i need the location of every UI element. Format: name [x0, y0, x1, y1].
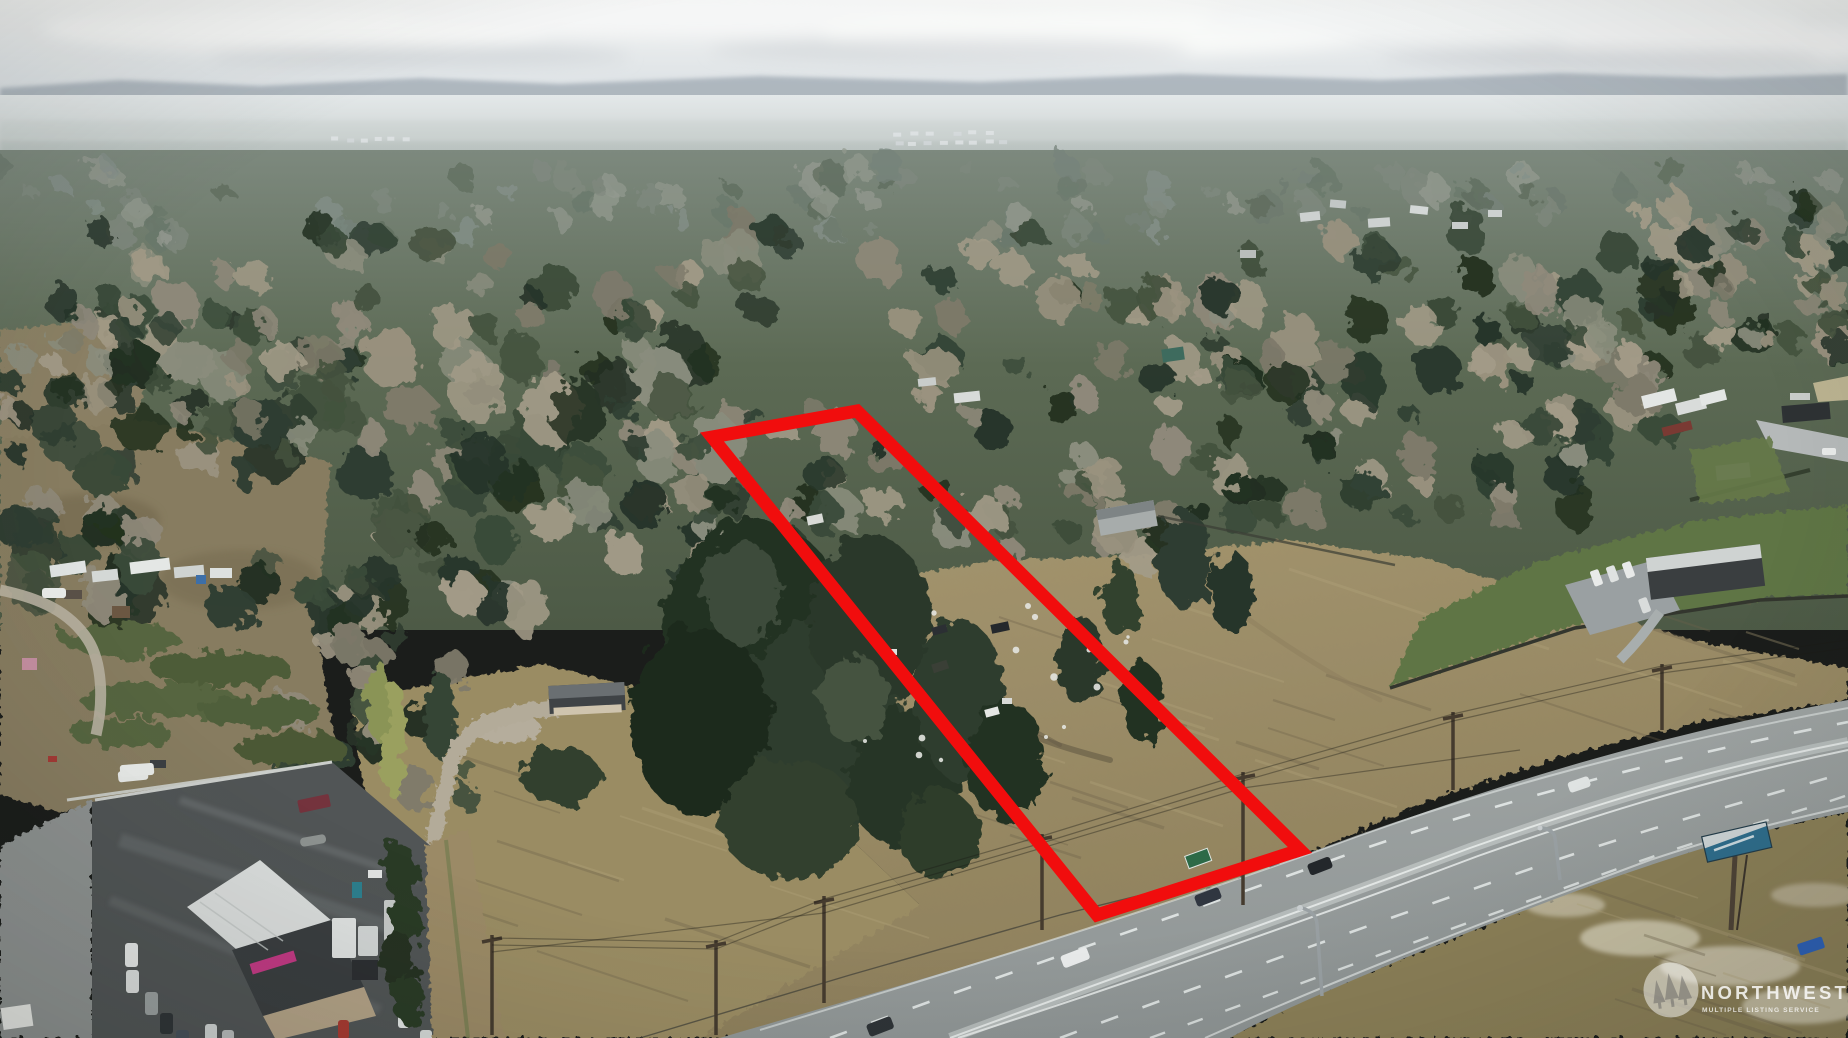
photo-vignette	[0, 0, 1848, 1038]
watermark-subtitle-text: MULTIPLE LISTING SERVICE	[1702, 1007, 1820, 1014]
watermark-brand-text: NORTHWEST	[1701, 982, 1848, 1003]
aerial-property-photo: NORTHWEST MULTIPLE LISTING SERVICE	[0, 0, 1848, 1038]
